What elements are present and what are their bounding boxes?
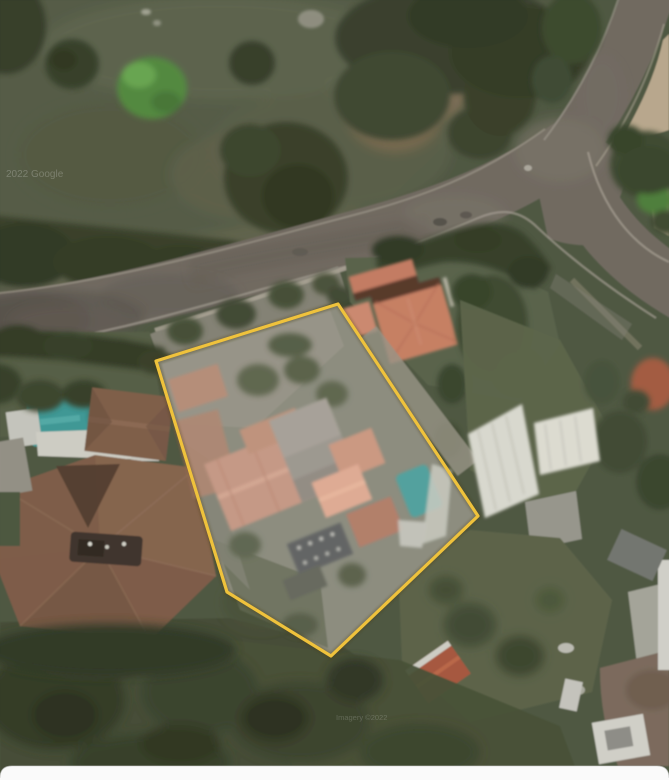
svg-text:2022 Google: 2022 Google <box>6 169 64 180</box>
svg-text:Imagery ©2022: Imagery ©2022 <box>336 713 387 722</box>
